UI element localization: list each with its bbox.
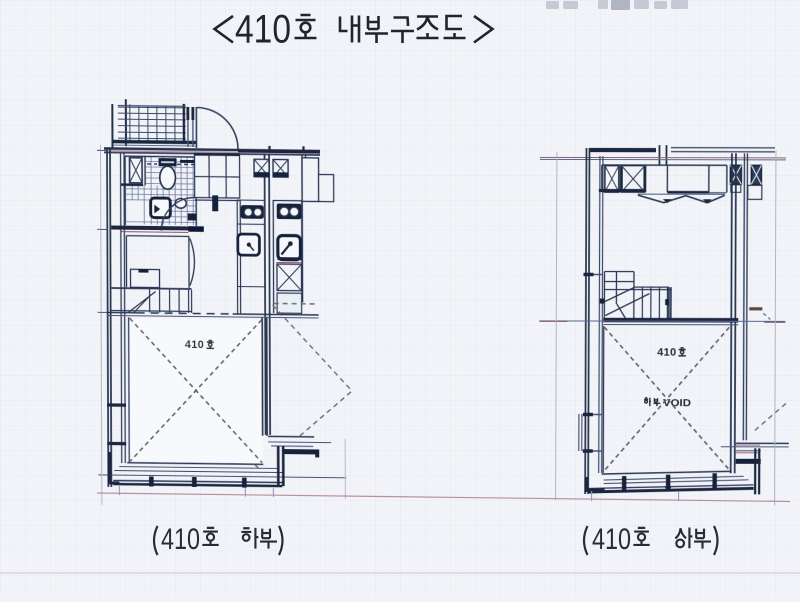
svg-text:VOID: VOID [663,397,692,409]
svg-text:410: 410 [161,523,200,556]
svg-text:410: 410 [185,339,204,351]
svg-text:410: 410 [235,8,291,52]
svg-text:410: 410 [592,523,631,556]
svg-text:410: 410 [657,347,676,359]
